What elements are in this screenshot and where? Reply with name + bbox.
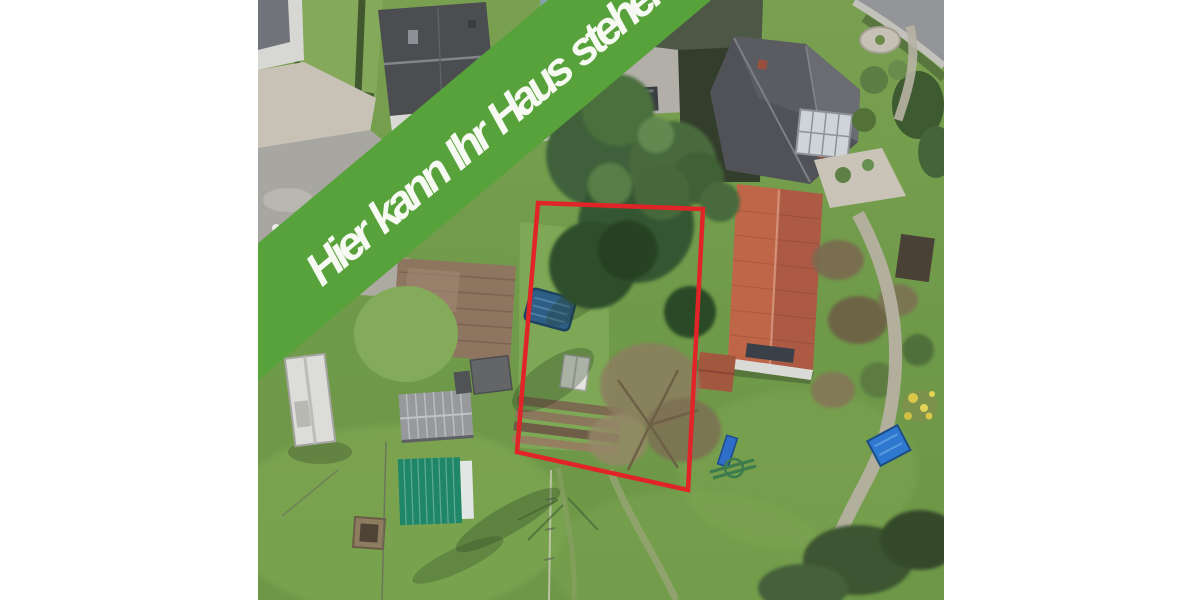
real-estate-listing-image: Hier kann Ihr Haus stehen: [0, 0, 1200, 600]
compost-box: [353, 517, 385, 549]
green-roof-shed: [398, 457, 474, 526]
gray-shed: [398, 390, 473, 443]
yellow-flower-bush: [902, 390, 938, 422]
conservatory: [796, 109, 852, 158]
aerial-photo: Hier kann Ihr Haus stehen: [258, 0, 944, 600]
